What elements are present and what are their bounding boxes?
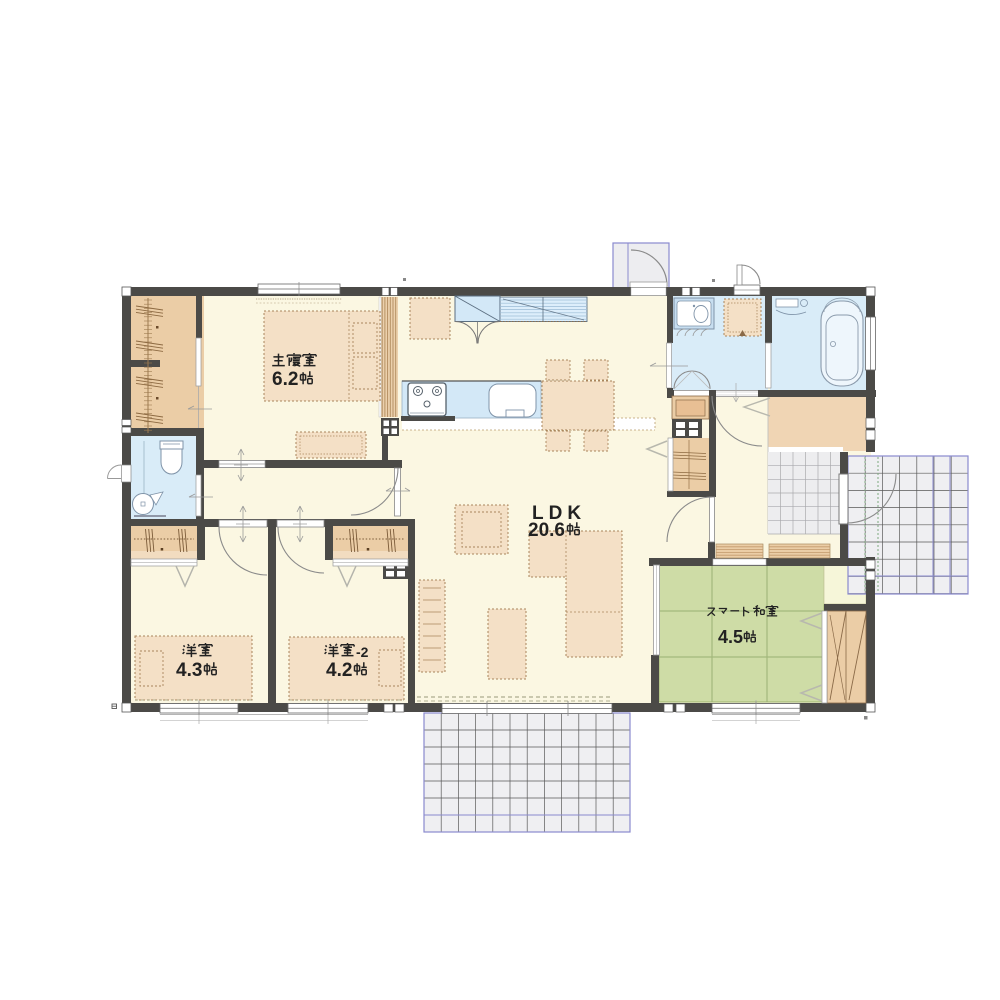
svg-text:4.2: 4.2 — [326, 660, 352, 681]
svg-text:-2: -2 — [356, 644, 369, 660]
svg-text:4.5: 4.5 — [718, 627, 743, 647]
svg-text:4.3: 4.3 — [176, 660, 202, 681]
svg-text:6.2: 6.2 — [272, 369, 298, 390]
svg-text:20.6: 20.6 — [528, 520, 565, 541]
